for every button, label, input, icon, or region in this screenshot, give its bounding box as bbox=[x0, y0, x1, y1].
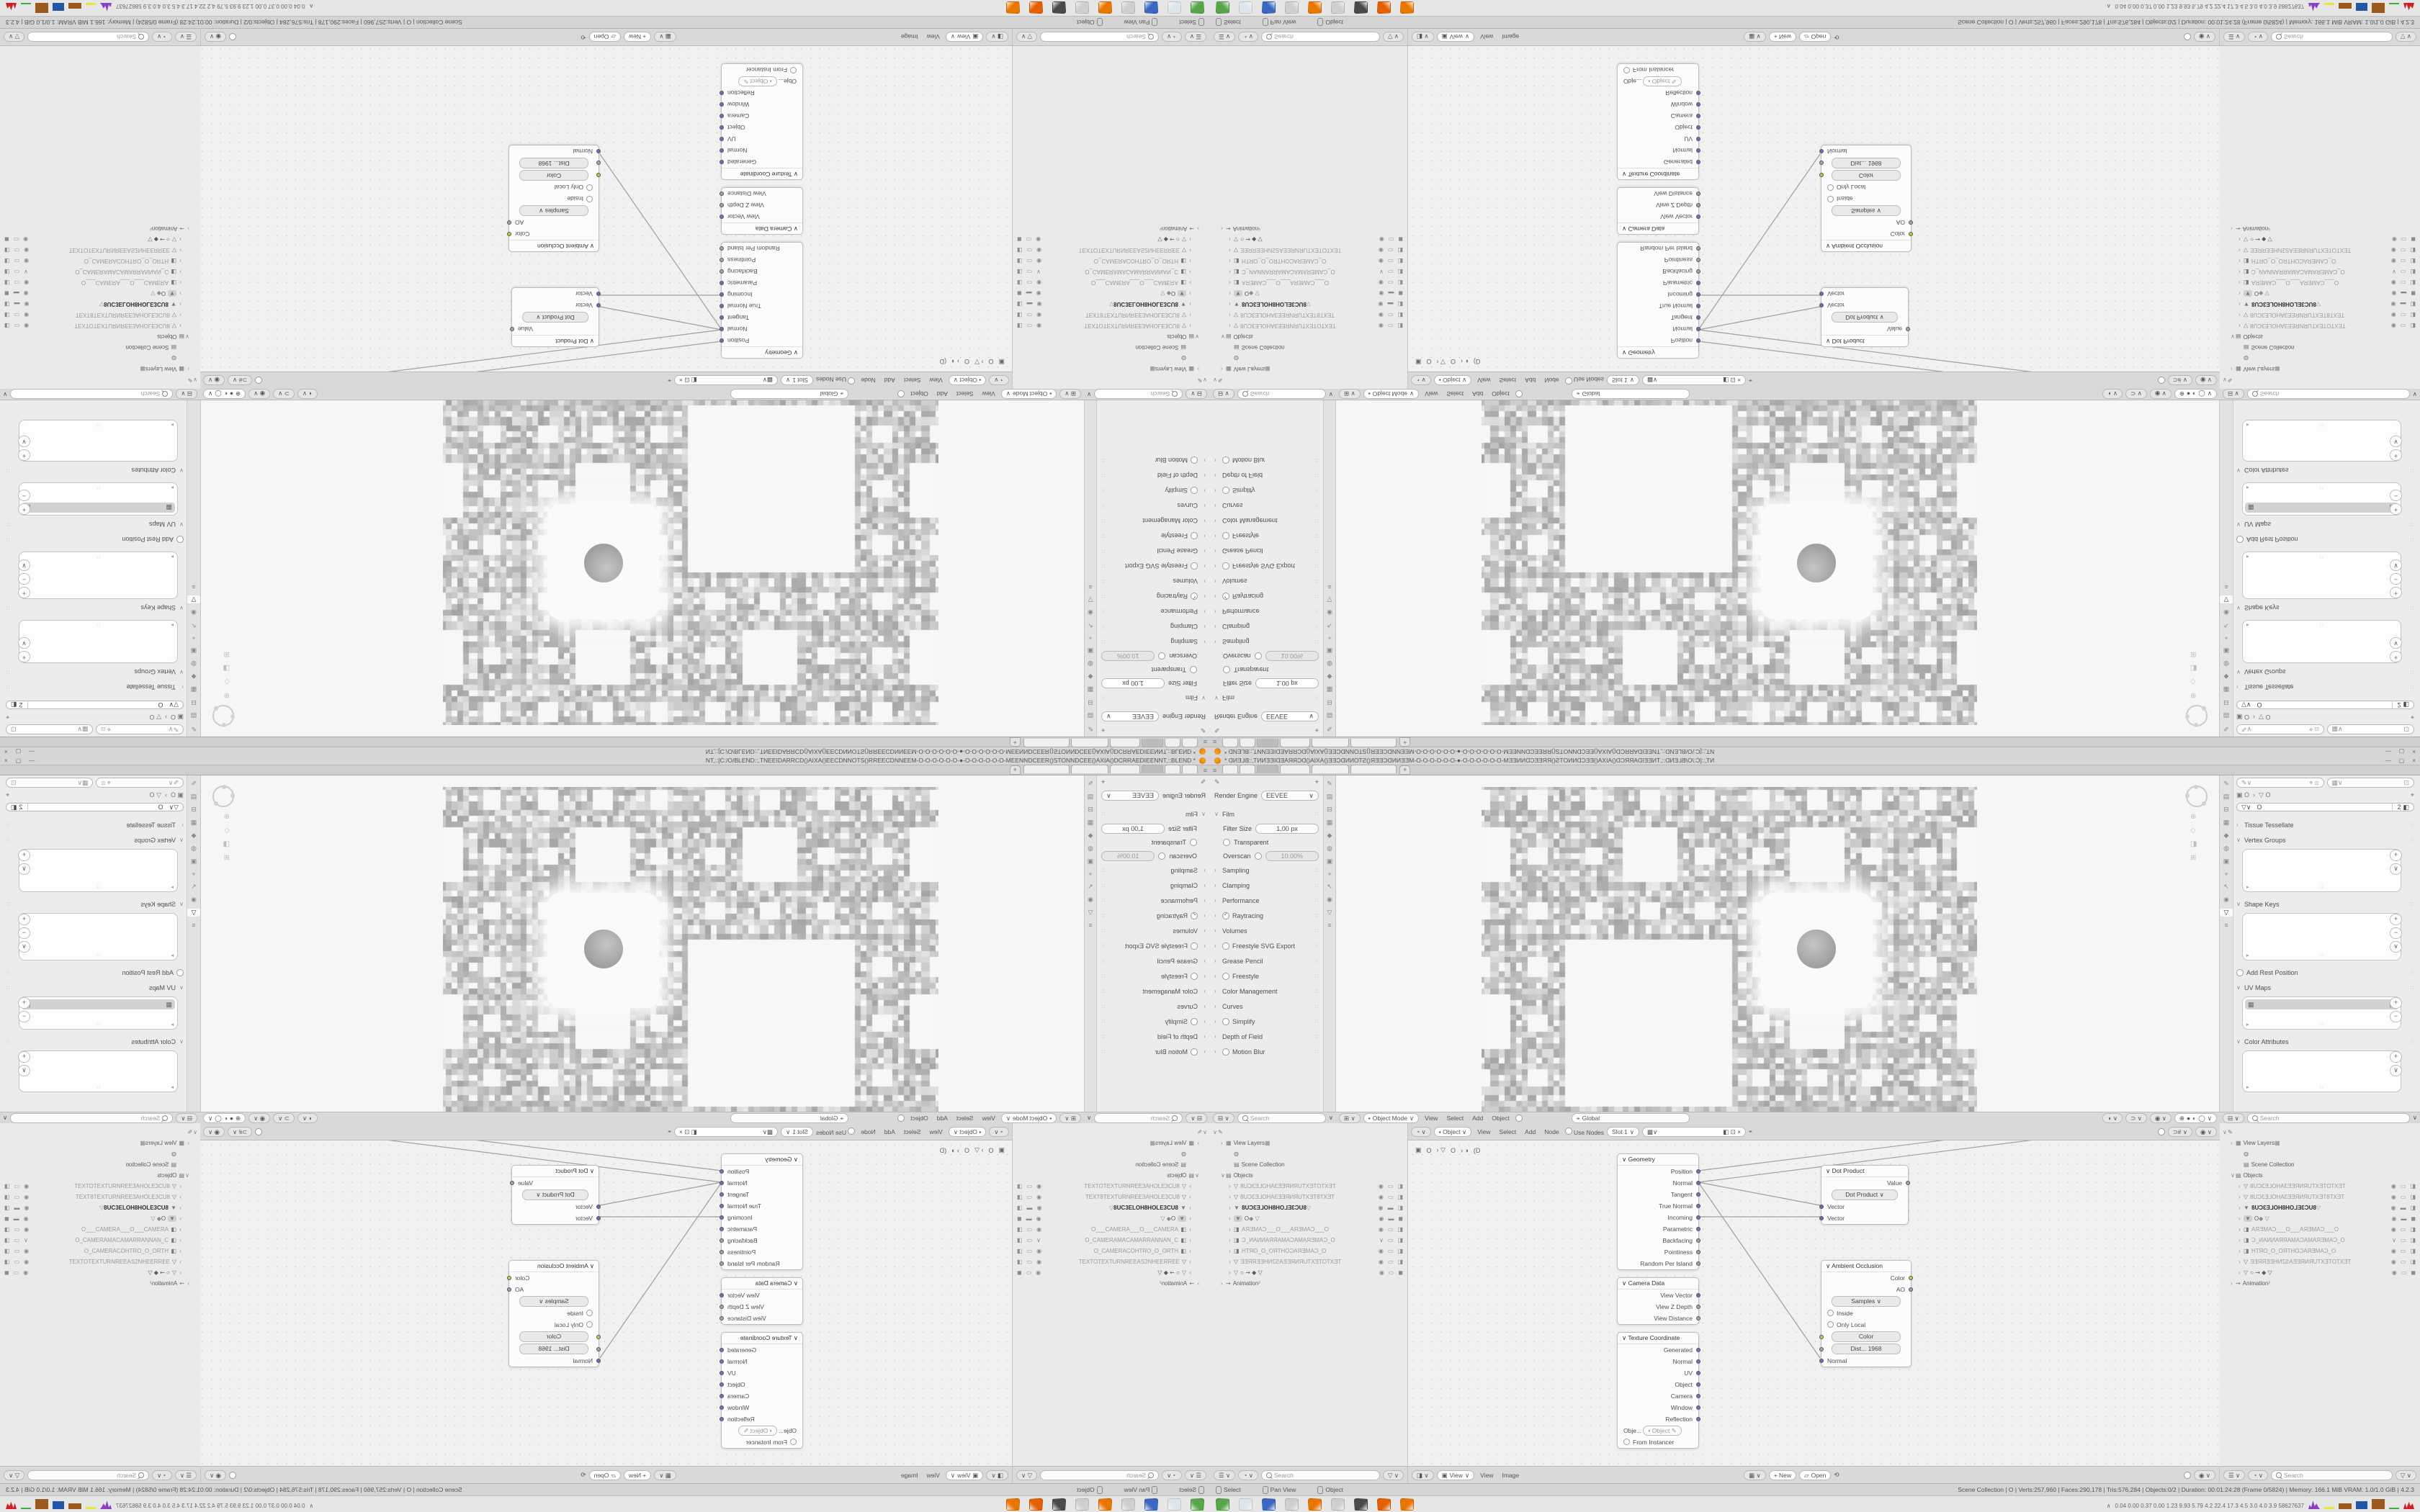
mode-select[interactable]: ▪ Object Mode ∨ bbox=[1001, 1113, 1057, 1123]
workspace-tab[interactable] bbox=[1110, 739, 1140, 747]
slot-select[interactable]: Slot 1 ∨ bbox=[781, 1127, 813, 1137]
outliner-row[interactable]: ›▼O ◆ ▽◉▬◼ bbox=[0, 288, 197, 299]
minimize-button[interactable]: — bbox=[29, 757, 35, 764]
visibility-toggle-icon[interactable]: ▭ bbox=[14, 1237, 20, 1243]
list-button[interactable]: ∨ bbox=[18, 863, 30, 875]
properties-tab-icon[interactable]: ◍ bbox=[191, 660, 197, 667]
overscan-checkbox[interactable] bbox=[1158, 852, 1165, 860]
workspace-tab[interactable] bbox=[1110, 765, 1140, 773]
workspace-tab[interactable] bbox=[1280, 739, 1310, 747]
visibility-toggle-icon[interactable]: ◼ bbox=[1017, 1269, 1022, 1276]
taskbar-app-firefox[interactable] bbox=[1377, 2, 1391, 14]
properties-section[interactable]: ›Motion Blur∷ bbox=[1101, 1044, 1206, 1059]
workspace-tab[interactable] bbox=[1240, 739, 1255, 747]
properties-tab-icon[interactable]: ▣ bbox=[1327, 647, 1333, 654]
restore-button[interactable]: ▢ bbox=[16, 749, 22, 755]
visibility-toggle-icon[interactable]: ◉ bbox=[24, 258, 29, 264]
visibility-toggle-icon[interactable]: ◨ bbox=[2410, 247, 2416, 253]
visibility-toggle-icon[interactable]: ◨ bbox=[1017, 258, 1023, 264]
outliner-row[interactable]: ›◨O_CAMERAMACAMARRANNAN_C∨▭◨ bbox=[1213, 266, 1407, 277]
taskbar-app-calculator-2[interactable] bbox=[1331, 2, 1345, 14]
outliner-row[interactable]: ›◨O_CAMERACOHTRO_O_ORTH◉▭◨ bbox=[0, 1246, 197, 1256]
new-image-button[interactable]: + New bbox=[1769, 32, 1796, 42]
snapping-toggle[interactable] bbox=[2158, 1128, 2165, 1135]
outliner-row[interactable]: ∨✎ bbox=[2223, 1127, 2420, 1138]
tray-caret[interactable]: ∧ bbox=[309, 1503, 313, 1509]
properties-section[interactable]: ›Sampling∷ bbox=[1101, 634, 1206, 649]
outliner-row[interactable]: ›▽TEXT8TEXTURNREE3AHOLE3CU8◉▭◨ bbox=[1013, 310, 1207, 320]
visibility-toggle-icon[interactable]: ◨ bbox=[1017, 301, 1023, 307]
visibility-toggle-icon[interactable]: ◨ bbox=[1397, 269, 1403, 275]
properties-section[interactable]: ›Color Management∷ bbox=[1214, 984, 1319, 999]
outliner-row[interactable]: ›▼O ◆ ▽◉▬◼ bbox=[2223, 288, 2420, 299]
overscan-checkbox[interactable] bbox=[1255, 653, 1262, 660]
properties-tab-icon[interactable]: ✎ bbox=[1327, 724, 1332, 732]
visibility-toggle-icon[interactable]: ◨ bbox=[4, 312, 10, 318]
list-button[interactable]: ∨ bbox=[18, 637, 30, 649]
node-value-field[interactable]: Dist... 1968 bbox=[1832, 158, 1901, 168]
open-image-button[interactable]: ▱ Open bbox=[1799, 1470, 1831, 1480]
properties-section[interactable]: ›Curves∷ bbox=[1214, 498, 1319, 513]
properties-tab-icon[interactable]: ↖ bbox=[1327, 883, 1332, 891]
workspace-tab[interactable] bbox=[1280, 765, 1310, 773]
properties-section[interactable]: ›Sampling∷ bbox=[1101, 863, 1206, 878]
visibility-toggle-icon[interactable]: ▬ bbox=[2400, 1205, 2406, 1211]
close-button[interactable]: × bbox=[4, 757, 8, 764]
outliner-row[interactable]: ›⇝Animation ² bbox=[1013, 223, 1207, 234]
editor-type-button[interactable]: ⊟ ∨ bbox=[1213, 390, 1234, 400]
properties-tab-icon[interactable]: ◆ bbox=[1327, 832, 1332, 840]
visibility-toggle-icon[interactable]: ◨ bbox=[1397, 1226, 1403, 1233]
taskbar-app-calculator[interactable] bbox=[1121, 2, 1135, 14]
outliner-search-input[interactable]: Search bbox=[27, 1470, 149, 1480]
visibility-toggle-icon[interactable]: ◼ bbox=[1017, 1215, 1022, 1222]
visibility-toggle-icon[interactable]: ◉ bbox=[2391, 1259, 2396, 1265]
visibility-toggle-icon[interactable]: ◼ bbox=[1398, 1269, 1403, 1276]
transform-orientation[interactable]: ⌖ Global bbox=[730, 390, 848, 400]
taskbar-app-calculator[interactable] bbox=[1285, 1498, 1299, 1511]
select-menu[interactable]: Select bbox=[954, 391, 977, 398]
outliner-search-input[interactable]: Search bbox=[1261, 32, 1380, 42]
visibility-toggle-icon[interactable]: ∨ bbox=[1379, 269, 1384, 275]
properties-tab-icon[interactable]: ▤ bbox=[191, 793, 197, 801]
options-chevron[interactable]: ∨ bbox=[3, 390, 7, 398]
filter-button[interactable]: ▽ ∨ bbox=[1016, 32, 1037, 42]
properties-tab-icon[interactable]: + bbox=[192, 870, 195, 878]
list-button[interactable]: ∨ bbox=[18, 559, 30, 571]
visibility-toggle-icon[interactable]: ◉ bbox=[2391, 1226, 2396, 1233]
visibility-toggle-icon[interactable]: ▭ bbox=[2401, 1194, 2406, 1200]
list-button[interactable]: + bbox=[18, 651, 30, 662]
outliner-row[interactable]: ◍ bbox=[2223, 353, 2420, 364]
properties-tab-icon[interactable]: ▦ bbox=[2223, 685, 2230, 693]
visibility-toggle-icon[interactable]: ◨ bbox=[1017, 1259, 1023, 1265]
outliner-row[interactable]: ◍ bbox=[0, 353, 197, 364]
taskbar-app-calculator-2[interactable] bbox=[1075, 2, 1089, 14]
outliner-row[interactable]: ›◨O_CAMERACOHTRO_O_ORTH◉▭◨ bbox=[1213, 1246, 1407, 1256]
shader-node-dot-product[interactable]: ∨ Dot ProductValueDot Product ∨VectorVec… bbox=[511, 287, 599, 347]
list-button[interactable]: ∨ bbox=[2390, 863, 2402, 875]
editor-type-button[interactable]: ◨ ∨ bbox=[1412, 32, 1434, 42]
list-button[interactable]: ∨ bbox=[2390, 559, 2402, 571]
select-menu[interactable]: Select bbox=[1443, 1115, 1466, 1122]
overlays-button[interactable]: ◉ ∨ bbox=[248, 1113, 270, 1123]
list-button[interactable]: ∨ bbox=[2390, 941, 2402, 953]
tool-settings-toggle[interactable] bbox=[897, 391, 905, 398]
properties-section[interactable]: ›Depth of Field∷ bbox=[1101, 1029, 1206, 1044]
restore-button[interactable]: ▢ bbox=[2399, 757, 2405, 764]
visibility-toggle-icon[interactable]: ▭ bbox=[1027, 1248, 1033, 1254]
outliner-row[interactable]: ›◨O_CAMERACOHTRO_O_ORTH◉▭◨ bbox=[1013, 1246, 1207, 1256]
outliner-row[interactable]: ∨✎ bbox=[1013, 374, 1207, 385]
editor-type-button[interactable]: ⊞ ∨ bbox=[1059, 390, 1081, 400]
visibility-toggle-icon[interactable]: ◉ bbox=[1379, 312, 1384, 318]
outliner-row[interactable]: ›▦View Layers ▦ bbox=[1213, 1138, 1407, 1148]
outliner-search-input[interactable]: Search bbox=[1040, 32, 1159, 42]
outliner-row[interactable]: ›▼O ◆ ▽◉▬◼ bbox=[2223, 1213, 2420, 1224]
visibility-toggle-icon[interactable]: ▭ bbox=[1388, 1259, 1394, 1265]
close-button[interactable]: × bbox=[4, 749, 8, 755]
properties-tab-strip[interactable]: ✎▤⊟▦◆◍▣+↖◉▽≡ bbox=[187, 775, 200, 1112]
outliner-row[interactable]: ›◨O_CAMERACOHTRO_O_ORTH◉▭◨ bbox=[1213, 256, 1407, 266]
visibility-toggle-icon[interactable]: ◉ bbox=[1036, 236, 1041, 243]
visibility-toggle-icon[interactable]: ▭ bbox=[1388, 1237, 1394, 1243]
visibility-toggle-icon[interactable]: ◉ bbox=[1379, 290, 1384, 297]
visibility-toggle-icon[interactable]: ◉ bbox=[1036, 1248, 1041, 1254]
view-menu[interactable]: View bbox=[1474, 377, 1493, 384]
node-object-field[interactable]: ▪ Object ✎ bbox=[738, 76, 776, 86]
taskbar-app-firefox[interactable] bbox=[1377, 1498, 1391, 1511]
visibility-toggle-icon[interactable]: ▭ bbox=[14, 279, 20, 286]
slot-select[interactable]: Slot 1 ∨ bbox=[781, 376, 813, 386]
filter-person-button[interactable]: ◔ ∨ bbox=[1162, 32, 1182, 42]
editor-type-button[interactable]: ⊟ ∨ bbox=[176, 1113, 197, 1123]
snap-button[interactable]: ⊃ ∨ bbox=[273, 390, 295, 400]
taskbar-app-save-blue[interactable] bbox=[1262, 2, 1276, 14]
list-button[interactable]: + bbox=[18, 449, 30, 461]
workspace-tab[interactable] bbox=[1222, 739, 1238, 747]
snapping-toggle[interactable] bbox=[255, 1128, 262, 1135]
list-button[interactable]: ∨ bbox=[18, 436, 30, 447]
list-button[interactable]: + bbox=[18, 850, 30, 861]
node-enum-button[interactable]: Samples ∨ bbox=[1832, 1296, 1901, 1307]
data-panel[interactable]: ∨Color Attributes∷ bbox=[6, 463, 184, 478]
properties-tab-icon[interactable]: ▦ bbox=[1088, 685, 1094, 693]
display-channels-button[interactable]: ▣ View ∨ bbox=[1437, 1470, 1475, 1480]
shader-node-canvas[interactable]: ▣ O › ▽ O › ◑ (D ∨ GeometryPositionNorma… bbox=[200, 1140, 1012, 1466]
visibility-toggle-icon[interactable]: ◉ bbox=[1036, 279, 1041, 286]
outliner-row[interactable]: ▤Scene Collection bbox=[2223, 342, 2420, 353]
taskbar-app-text-editor[interactable] bbox=[1239, 1498, 1252, 1511]
outliner-row[interactable]: ›▽○ ⇝ ◆ ▽◉▭◼ bbox=[1213, 1267, 1407, 1278]
properties-section[interactable]: ›Freestyle SVG Export∷ bbox=[1214, 938, 1319, 953]
snap-button[interactable]: ⊃ ∨ bbox=[2125, 1113, 2147, 1123]
pin-icon[interactable]: ⌖ bbox=[6, 713, 9, 721]
taskbar-app-blender-2[interactable] bbox=[1006, 2, 1020, 14]
properties-tab-icon[interactable]: ▦ bbox=[191, 819, 197, 827]
outliner-row[interactable]: ›▽TEXTOTEXTURNREEAS2NHEERREE◉▭◨ bbox=[1213, 245, 1407, 256]
visibility-toggle-icon[interactable]: ▬ bbox=[1026, 1215, 1032, 1222]
visibility-toggle-icon[interactable]: ▭ bbox=[14, 312, 20, 318]
visibility-toggle-icon[interactable]: ◉ bbox=[2391, 290, 2396, 297]
properties-tab-strip[interactable]: ✎▤⊟▦◆◍▣+↖◉▽≡ bbox=[1323, 775, 1335, 1112]
visibility-toggle-icon[interactable]: ▭ bbox=[14, 1183, 20, 1189]
properties-tab-icon[interactable]: ≡ bbox=[2224, 922, 2228, 929]
select-menu[interactable]: Select bbox=[1443, 391, 1466, 398]
visibility-toggle-icon[interactable]: ◉ bbox=[1378, 1205, 1383, 1211]
filter-person-button[interactable]: ◔ ∨ bbox=[152, 32, 172, 42]
data-panel[interactable]: ∨Vertex Groups∷ bbox=[2236, 832, 2414, 847]
visibility-toggle-icon[interactable]: ▬ bbox=[1388, 1215, 1394, 1222]
outliner-row[interactable]: ›▽TEXTOTEXTURNREEAS2NHEERREE◉▭◨ bbox=[0, 245, 197, 256]
vertex-groups-list[interactable]: ▸∷+∨ bbox=[2242, 849, 2401, 892]
image-id-selector[interactable]: ▦∨ ⊡ bbox=[2327, 778, 2415, 788]
visibility-toggle-icon[interactable]: ▭ bbox=[14, 1259, 20, 1265]
tool-settings-toggle[interactable] bbox=[1515, 391, 1523, 398]
node-object-field[interactable]: ▪ Object ✎ bbox=[1643, 76, 1681, 86]
visibility-toggle-icon[interactable]: ◨ bbox=[2410, 279, 2416, 286]
visibility-toggle-icon[interactable]: ◨ bbox=[1017, 279, 1023, 286]
visibility-toggle-icon[interactable]: ◉ bbox=[2391, 323, 2396, 329]
visibility-toggle-icon[interactable]: ▭ bbox=[1027, 1194, 1033, 1200]
data-panel[interactable]: ∨Shape Keys∷ bbox=[2236, 600, 2414, 616]
navigation-gizmo[interactable] bbox=[2186, 786, 2208, 807]
render-engine-select[interactable]: EEVEE∨ bbox=[1101, 791, 1159, 801]
properties-section[interactable]: ›Performance∷ bbox=[1101, 604, 1206, 619]
outliner-row[interactable]: ›▦View Layers ▦ bbox=[1013, 364, 1207, 374]
visibility-toggle-icon[interactable]: ▬ bbox=[14, 301, 20, 307]
outliner-row[interactable]: ›▽TEXTOTEXTURNREE3AHOLE3CU8◉▭◨ bbox=[0, 1181, 197, 1192]
outliner-row[interactable]: ▤Scene Collection bbox=[1013, 1159, 1207, 1170]
shader-node-camera-data[interactable]: ∨ Camera DataView VectorView Z DepthView… bbox=[1617, 1277, 1699, 1325]
properties-section[interactable]: ›Clamping∷ bbox=[1101, 619, 1206, 634]
visibility-toggle-icon[interactable]: ◉ bbox=[1036, 1226, 1041, 1233]
visibility-toggle-icon[interactable]: ◉ bbox=[1379, 1226, 1384, 1233]
navigation-gizmo[interactable] bbox=[2186, 705, 2208, 726]
properties-tab-icon[interactable]: ⊟ bbox=[2223, 698, 2229, 706]
properties-section[interactable]: ›Volumes∷ bbox=[1214, 923, 1319, 938]
visibility-toggle-icon[interactable]: ▭ bbox=[2401, 1259, 2406, 1265]
image-id-icon[interactable]: ▦ ∨ bbox=[1744, 1470, 1766, 1480]
outliner-row[interactable]: ›▽TEXTOTEXTURNREE3AHOLE3CU8◉▭◨ bbox=[1213, 320, 1407, 331]
outliner-row[interactable]: ›⇝Animation ² bbox=[2223, 1278, 2420, 1289]
properties-tab-strip[interactable]: ✎▤⊟▦◆◍▣+↖◉▽≡ bbox=[187, 400, 200, 737]
image-menu[interactable]: Image bbox=[898, 1472, 921, 1479]
hamburger-icon[interactable]: ≡ bbox=[1204, 739, 1207, 746]
properties-tab-icon[interactable]: ▤ bbox=[1088, 793, 1094, 801]
shading-mode-group[interactable]: ⊕ ● ◐ ◯ ∨ bbox=[2174, 1113, 2217, 1123]
node-enum-button[interactable]: Dot Product ∨ bbox=[1832, 1189, 1898, 1200]
select-menu[interactable]: Select bbox=[901, 377, 924, 384]
visibility-toggle-icon[interactable]: ◉ bbox=[1379, 1248, 1384, 1254]
pin-icon[interactable]: ⌖ bbox=[2411, 713, 2414, 721]
shader-node-dot-product[interactable]: ∨ Dot ProductValueDot Product ∨VectorVec… bbox=[511, 1165, 599, 1225]
outliner-row[interactable]: ›▽TEXTOTEXTURNREE3AHOLE3CU8◉▭◨ bbox=[0, 320, 197, 331]
viewport-3d[interactable]: ⊕◇◨⊞ bbox=[200, 400, 1084, 737]
film-section[interactable]: Film bbox=[1186, 811, 1198, 818]
overlays-button[interactable]: ◉ ∨ bbox=[203, 1127, 225, 1137]
material-selector[interactable]: ▩∨ ◧ ⊡ × bbox=[1642, 376, 1746, 386]
taskbar-app-blender[interactable] bbox=[1098, 2, 1112, 14]
display-mode-button[interactable]: ☰ ∨ bbox=[1214, 32, 1235, 42]
transparent-checkbox[interactable] bbox=[1190, 667, 1197, 674]
properties-tab-icon[interactable]: ≡ bbox=[192, 583, 195, 590]
taskbar-app-calculator-2[interactable] bbox=[1331, 1498, 1345, 1511]
outliner-row[interactable]: ›▼8UC3ELOH8HOLE3CU8 ▽◉▬◨ bbox=[1013, 299, 1207, 310]
node-value-field[interactable]: Dist... 1968 bbox=[519, 158, 588, 168]
visibility-toggle-icon[interactable]: ◨ bbox=[1397, 1194, 1403, 1200]
view-menu[interactable]: View bbox=[924, 1472, 943, 1479]
visibility-toggle-icon[interactable]: ◉ bbox=[2391, 312, 2396, 318]
list-button[interactable]: + bbox=[2390, 587, 2402, 598]
workspace-tab[interactable] bbox=[1312, 765, 1349, 773]
visibility-toggle-icon[interactable]: ▬ bbox=[2400, 301, 2406, 307]
editor-type-button[interactable]: ◨ ∨ bbox=[986, 1470, 1008, 1480]
new-image-button[interactable]: + New bbox=[624, 1470, 651, 1480]
properties-section[interactable]: ›Simplify∷ bbox=[1101, 1014, 1206, 1029]
outliner-row[interactable]: ›▽TEXTOTEXTURNREEAS2NHEERREE◉▭◨ bbox=[1213, 1256, 1407, 1267]
node-value-field[interactable]: Color bbox=[1832, 170, 1901, 181]
visibility-toggle-icon[interactable]: ◨ bbox=[4, 247, 10, 253]
filter-button[interactable]: ▽ ∨ bbox=[1016, 1470, 1037, 1480]
taskbar-app-system-monitor[interactable] bbox=[1354, 2, 1368, 14]
visibility-toggle-icon[interactable]: ◨ bbox=[4, 1194, 10, 1200]
properties-tab-icon[interactable]: ◍ bbox=[191, 845, 197, 852]
properties-tab-icon[interactable]: ↖ bbox=[191, 621, 197, 629]
node-object-field[interactable]: ▪ Object ✎ bbox=[738, 1426, 776, 1436]
add-menu[interactable]: Add bbox=[882, 377, 898, 384]
visibility-toggle-icon[interactable]: ◉ bbox=[24, 301, 30, 307]
list-button[interactable]: + bbox=[2390, 503, 2402, 515]
image-id-selector[interactable]: ▦∨ ⊡ bbox=[6, 778, 94, 788]
list-button[interactable]: + bbox=[2390, 1051, 2402, 1063]
visibility-toggle-icon[interactable]: ∨ bbox=[1036, 1237, 1041, 1243]
editor-type-button[interactable]: ⊞ ∨ bbox=[1339, 1113, 1361, 1123]
properties-tab-strip[interactable]: ✎▤⊟▦◆◍▣+↖◉▽≡ bbox=[2220, 775, 2233, 1112]
shader-node-canvas[interactable]: ▣ O › ▽ O › ◑ (D ∨ GeometryPositionNorma… bbox=[1408, 1140, 2220, 1466]
workspace-tab[interactable] bbox=[1222, 765, 1238, 773]
visibility-toggle-icon[interactable]: ◼ bbox=[1398, 290, 1403, 297]
visibility-toggle-icon[interactable]: ◨ bbox=[4, 1259, 10, 1265]
properties-tab-icon[interactable]: ▤ bbox=[191, 711, 197, 719]
outliner-row[interactable]: ∨▤Objects bbox=[2223, 331, 2420, 342]
outliner-row[interactable]: ›⇝Animation ² bbox=[1213, 1278, 1407, 1289]
visibility-toggle-icon[interactable]: ◉ bbox=[1379, 323, 1384, 329]
visibility-toggle-icon[interactable]: ▭ bbox=[1027, 1237, 1033, 1243]
list-button[interactable]: + bbox=[18, 997, 30, 1009]
properties-section[interactable]: ›Freestyle∷ bbox=[1101, 968, 1206, 984]
properties-tab-icon[interactable]: ▦ bbox=[2223, 819, 2230, 827]
properties-tab-icon[interactable]: ▦ bbox=[1088, 819, 1094, 827]
visibility-toggle-icon[interactable]: ▭ bbox=[2401, 312, 2406, 318]
node-value-field[interactable]: Color bbox=[1832, 1331, 1901, 1342]
properties-section[interactable]: ›Sampling∷ bbox=[1214, 863, 1319, 878]
outliner-row[interactable]: ◍ bbox=[1013, 1148, 1207, 1159]
display-channels-button[interactable]: ▣ View ∨ bbox=[946, 1470, 984, 1480]
properties-tab-icon[interactable]: ≡ bbox=[1088, 583, 1092, 590]
visibility-toggle-icon[interactable]: ◼ bbox=[1398, 236, 1403, 243]
visibility-toggle-icon[interactable]: ◨ bbox=[2410, 301, 2416, 307]
film-section[interactable]: Film bbox=[1222, 811, 1234, 818]
outliner-row[interactable]: ›◨O_CAMERACOHTRO_O_ORTH◉▭◨ bbox=[0, 256, 197, 266]
filter-size-field[interactable]: 1.00 px bbox=[1255, 679, 1319, 689]
uv-maps-list[interactable]: ▦◨▸∷+− bbox=[19, 996, 178, 1030]
outliner-row[interactable]: ›◨O_CAMERACOHTRO_O_ORTH◉▭◨ bbox=[1013, 256, 1207, 266]
overlays-button[interactable]: ◉ ∨ bbox=[2195, 376, 2217, 386]
outliner-row[interactable]: ›◨O_CAMERAMACAMARRANNAN_C∨▭◨ bbox=[1013, 266, 1207, 277]
visibility-toggle-icon[interactable]: ◉ bbox=[1036, 1183, 1041, 1189]
use-nodes-checkbox[interactable] bbox=[1565, 1128, 1572, 1135]
list-button[interactable]: − bbox=[18, 927, 30, 939]
visibility-toggle-icon[interactable]: ◉ bbox=[1037, 1205, 1042, 1211]
visibility-toggle-icon[interactable]: ◉ bbox=[1379, 247, 1384, 253]
restore-button[interactable]: ▢ bbox=[2399, 749, 2405, 755]
properties-tab-icon[interactable]: ◉ bbox=[2223, 608, 2229, 616]
data-panel[interactable]: Add Rest Position∷ bbox=[6, 965, 184, 980]
visibility-toggle-icon[interactable]: ◉ bbox=[1379, 279, 1384, 286]
data-panel[interactable]: Add Rest Position∷ bbox=[6, 532, 184, 547]
properties-tab-icon[interactable]: ⊟ bbox=[1327, 806, 1332, 814]
viewport-tools[interactable]: ⊕◇◨⊞ bbox=[223, 813, 230, 862]
outliner-row[interactable]: ▤Scene Collection bbox=[0, 342, 197, 353]
mesh-name-field[interactable]: ▽∨ O2 ◧ bbox=[6, 701, 184, 709]
visibility-toggle-icon[interactable]: ◉ bbox=[1379, 1259, 1384, 1265]
properties-tab-strip[interactable]: ✎▤⊟▦◆◍▣+↖◉▽≡ bbox=[1323, 400, 1335, 737]
refresh-icon[interactable]: ⟲ bbox=[1834, 1471, 1839, 1479]
visibility-toggle-icon[interactable]: ▭ bbox=[1388, 258, 1394, 264]
outliner-row[interactable]: ∨▤Objects bbox=[1213, 1170, 1407, 1181]
outliner-row[interactable]: ◍ bbox=[1213, 1148, 1407, 1159]
outliner-row[interactable]: ∨▤Objects bbox=[1013, 1170, 1207, 1181]
outliner-search-input[interactable]: Search bbox=[2271, 1470, 2393, 1480]
properties-tab-icon[interactable]: ▦ bbox=[1327, 685, 1333, 693]
taskbar-app-blender[interactable] bbox=[1098, 1498, 1112, 1511]
data-panel[interactable]: ›Tissue Tessellate∷ bbox=[2236, 817, 2414, 832]
visibility-toggle-icon[interactable]: ∨ bbox=[2392, 269, 2396, 275]
filter-person-button[interactable]: ◔ ∨ bbox=[2248, 32, 2268, 42]
outliner-row[interactable]: ›▽TEXT8TEXTURNREE3AHOLE3CU8◉▭◨ bbox=[2223, 1192, 2420, 1202]
outliner-row[interactable]: ›▼8UC3ELOH8HOLE3CU8 ▽◉▬◨ bbox=[0, 1202, 197, 1213]
visibility-toggle-icon[interactable]: ◨ bbox=[4, 323, 10, 329]
visibility-toggle-icon[interactable]: ▬ bbox=[14, 1215, 19, 1222]
uv-map-item[interactable]: ▦◨ bbox=[2245, 999, 2398, 1009]
list-button[interactable]: − bbox=[18, 490, 30, 501]
properties-tab-strip[interactable]: ✎▤⊟▦◆◍▣+↖◉▽≡ bbox=[1085, 400, 1097, 737]
properties-tab-icon[interactable]: ◍ bbox=[1327, 845, 1332, 852]
properties-section[interactable]: ›Freestyle∷ bbox=[1214, 968, 1319, 984]
workspace-tab[interactable] bbox=[1023, 765, 1070, 773]
transform-orientation[interactable]: ⌖ Global bbox=[730, 1113, 848, 1123]
workspace-tab[interactable] bbox=[1023, 739, 1070, 747]
node-object-field[interactable]: ▪ Object ✎ bbox=[1643, 1426, 1681, 1436]
properties-tab-icon[interactable]: ▣ bbox=[191, 858, 197, 865]
properties-search-input[interactable]: Search bbox=[1094, 1113, 1183, 1123]
list-button[interactable]: ∨ bbox=[18, 941, 30, 953]
properties-tab-icon[interactable]: ✎ bbox=[191, 724, 197, 732]
visibility-toggle-icon[interactable]: ◉ bbox=[24, 1205, 30, 1211]
visibility-toggle-icon[interactable]: ◼ bbox=[2411, 290, 2416, 297]
outliner-row[interactable]: ∨▤Objects bbox=[0, 331, 197, 342]
overlays-button[interactable]: ◉ ∨ bbox=[205, 1470, 226, 1480]
visibility-toggle-icon[interactable]: ▭ bbox=[1026, 1269, 1032, 1276]
properties-section[interactable]: ›Raytracing∷ bbox=[1101, 908, 1206, 923]
add-menu[interactable]: Add bbox=[1469, 391, 1486, 398]
visibility-toggle-icon[interactable]: ◉ bbox=[1379, 236, 1384, 243]
visibility-toggle-icon[interactable]: ▭ bbox=[1027, 258, 1033, 264]
outliner-row[interactable]: ›▽TEXTOTEXTURNREE3AHOLE3CU8◉▭◨ bbox=[2223, 320, 2420, 331]
visibility-toggle-icon[interactable]: ◉ bbox=[23, 1269, 28, 1276]
add-menu[interactable]: Add bbox=[934, 1115, 951, 1122]
